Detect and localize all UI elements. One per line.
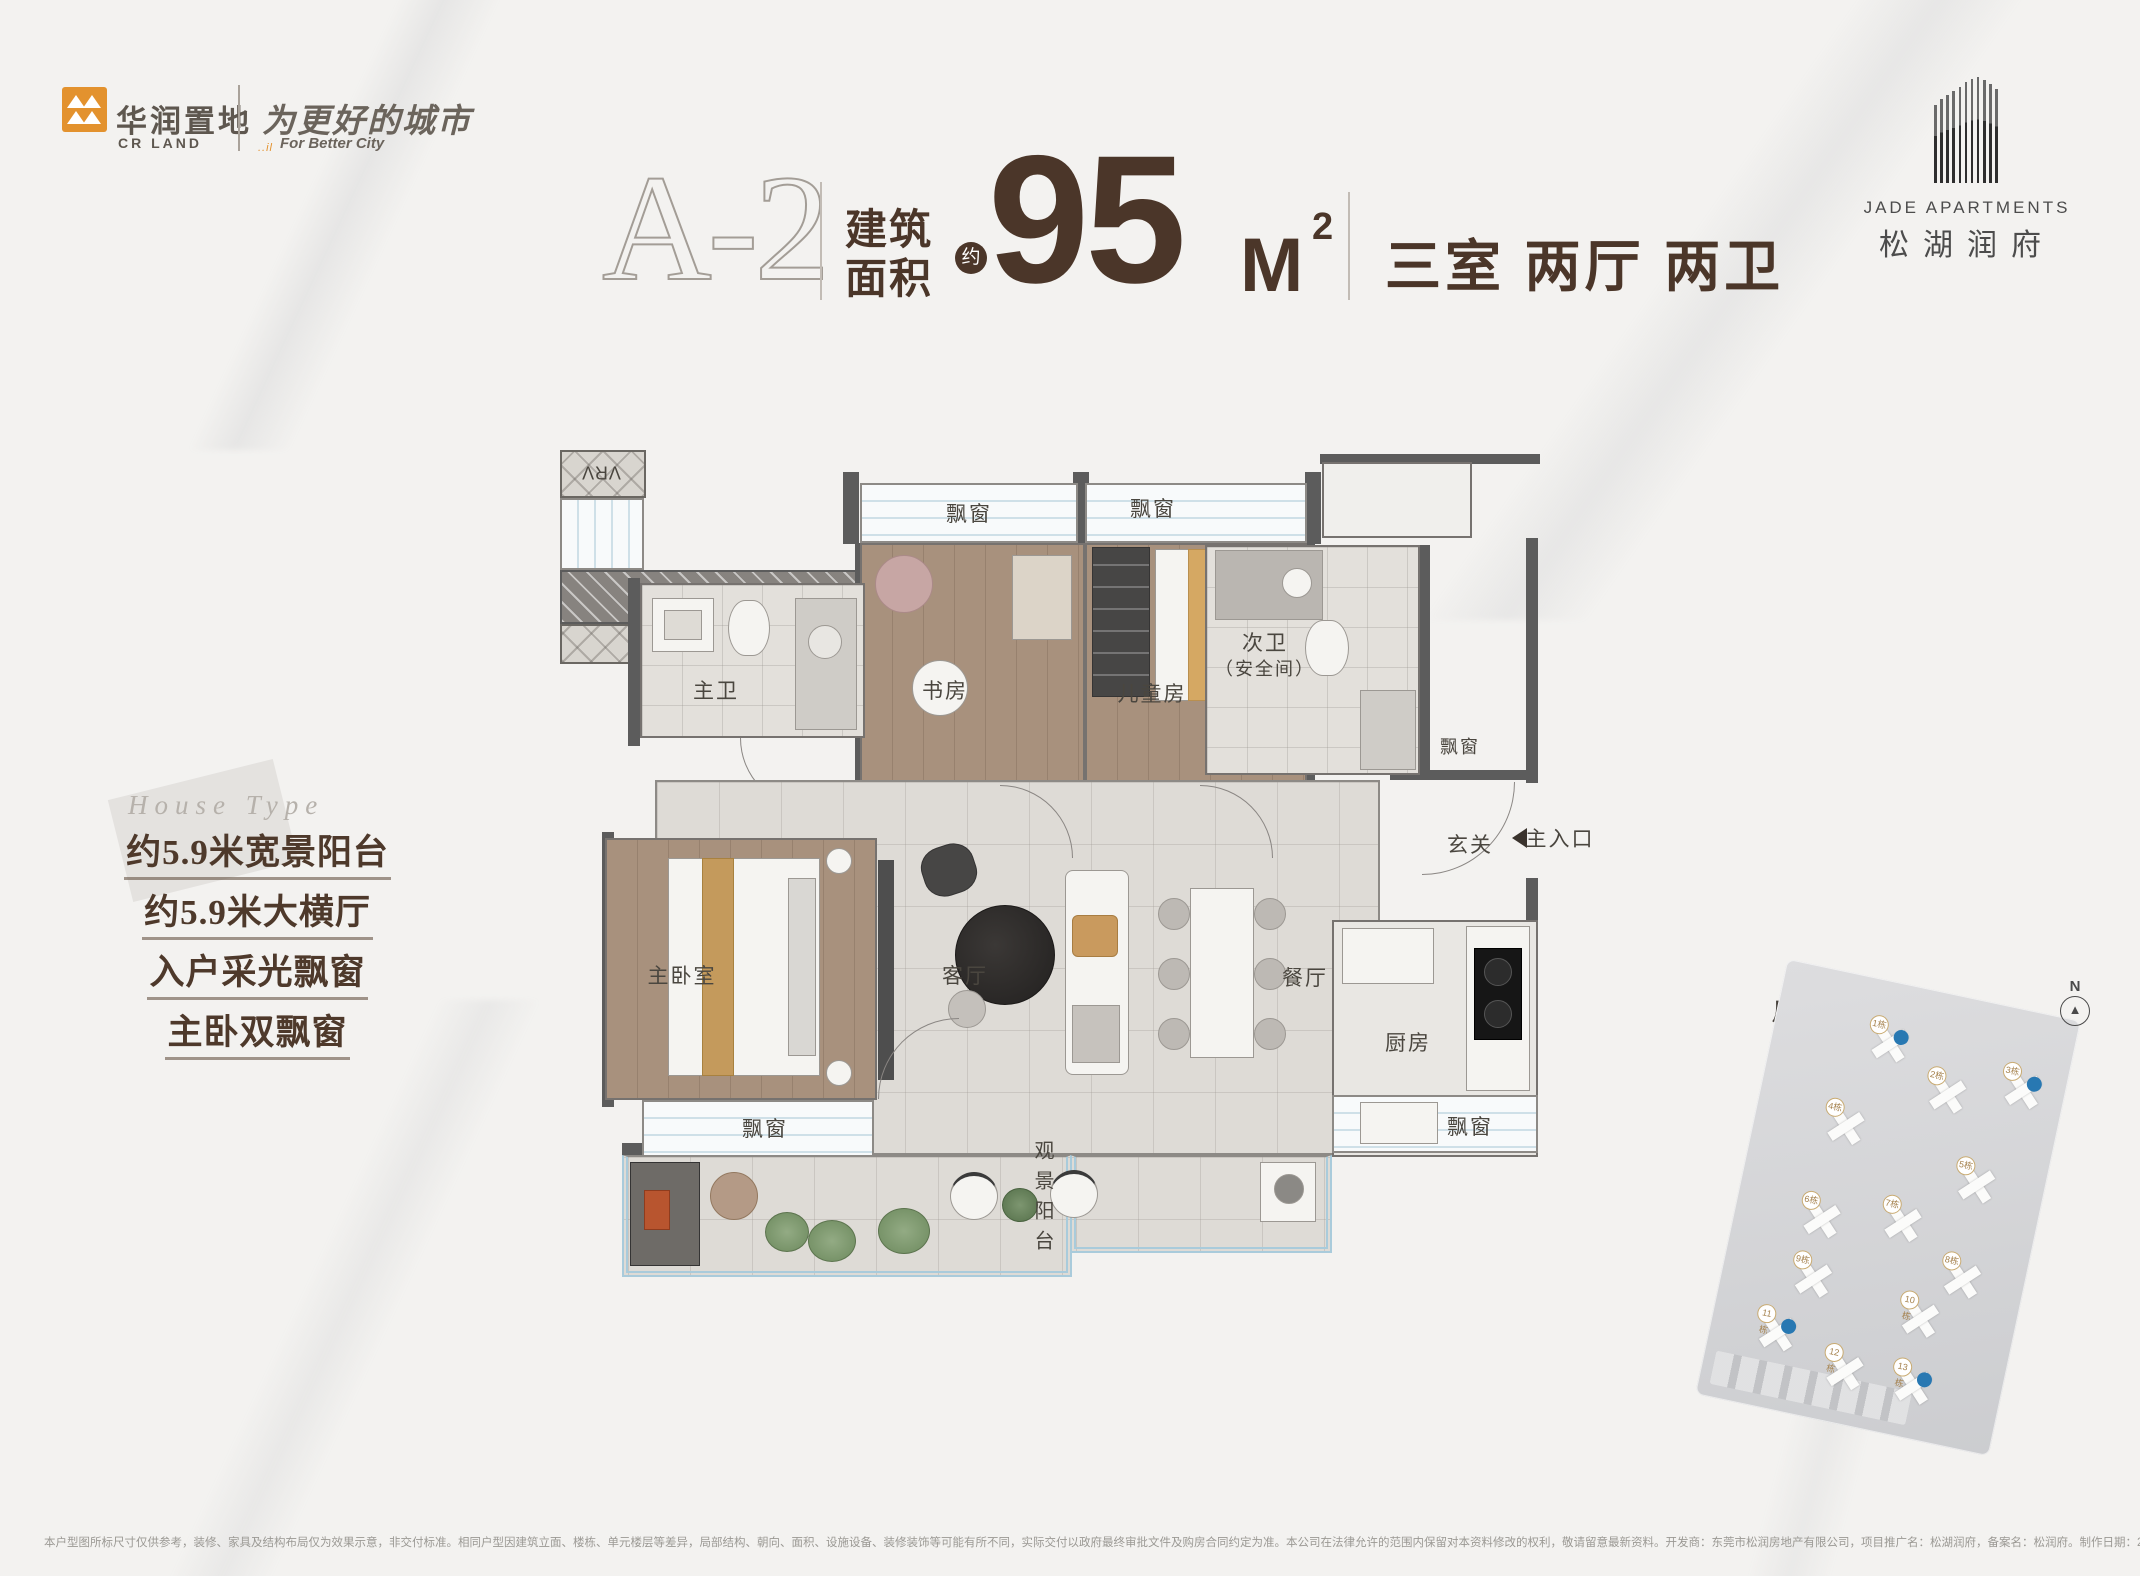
balcony-box: [644, 1190, 670, 1230]
area-unit-sup: 2: [1312, 206, 1333, 249]
project-name-en: JADE APARTMENTS: [1852, 198, 2082, 218]
study-rug: [875, 555, 933, 613]
bay-window-label: 飘窗: [742, 1113, 788, 1143]
selling-point-2: 约5.9米大横厅: [85, 884, 430, 935]
main-entrance-label: 主入口: [1526, 823, 1595, 853]
wall: [628, 578, 640, 746]
nightstand: [826, 848, 852, 874]
project-name-cn: 松湖润府: [1852, 220, 2082, 264]
balcony-label: 观景阳台: [1028, 1140, 1057, 1260]
shower-head: [808, 625, 842, 659]
plant: [765, 1212, 809, 1252]
selling-point-2-text: 约5.9米大横厅: [142, 893, 373, 940]
bay-window-label: 飘窗: [1130, 493, 1176, 523]
second-bath-shower: [1360, 690, 1416, 770]
room-master-bath-label: 主卫: [693, 675, 739, 705]
site-map: 1栋2栋3栋4栋5栋6栋7栋8栋9栋10栋11栋12栋13栋: [1695, 959, 2081, 1457]
unit-layout-text: 三室 两厅 两卫: [1385, 222, 1784, 303]
vrv-platform: [1322, 462, 1472, 538]
dining-chair: [1158, 898, 1190, 930]
room-living-label: 客厅: [942, 960, 988, 990]
balcony-table: [710, 1172, 758, 1220]
balcony-chair: [1050, 1170, 1098, 1218]
master-bath-sink: [664, 610, 702, 640]
kids-wardrobe: [1092, 547, 1150, 697]
north-compass: N ▲: [2058, 978, 2092, 1026]
dining-chair: [1158, 958, 1190, 990]
header-divider: [238, 85, 240, 151]
bay-window-kids: [1085, 483, 1307, 543]
burner: [1484, 1000, 1512, 1028]
sofa-cushion: [1072, 1005, 1120, 1063]
wall: [843, 472, 859, 544]
tv-wall: [878, 860, 894, 1080]
room-entry-label: 玄关: [1447, 829, 1493, 859]
selling-point-1-text: 约5.9米宽景阳台: [124, 833, 391, 880]
unit-type-label: A-2: [602, 152, 826, 304]
slogan-accent-icon: ..il: [258, 142, 273, 154]
plant: [878, 1208, 930, 1254]
area-unit: M: [1240, 222, 1303, 309]
bay-window-label: 飘窗: [946, 498, 992, 528]
master-bath-toilet: [728, 600, 770, 656]
north-arrow-icon: ▲: [2060, 996, 2090, 1026]
room-kitchen-label: 厨房: [1385, 1027, 1431, 1057]
title-divider: [820, 182, 822, 300]
master-bath-shower: [795, 598, 857, 730]
washer-door: [1274, 1174, 1304, 1204]
balcony-chair: [950, 1172, 998, 1220]
burner: [1484, 958, 1512, 986]
room-second-bath-label2: （安全间）: [1215, 655, 1315, 681]
room-second-bath-label: 次卫: [1242, 627, 1288, 657]
poster-canvas: 华润置地 CR LAND 为更好的城市 ..il For Better City…: [0, 0, 2140, 1576]
floor-plan: 飘窗 飘窗 VRV 书房 儿童房 次卫 （安全间） 飘窗: [560, 450, 1575, 1310]
selling-point-3-text: 入户采光飘窗: [147, 953, 367, 1000]
second-bath-sink: [1282, 568, 1312, 598]
area-value: 95: [988, 128, 1182, 310]
selling-point-4-text: 主卧双飘窗: [165, 1013, 349, 1060]
site-map-buildings: 1栋2栋3栋4栋5栋6栋7栋8栋9栋10栋11栋12栋13栋: [1695, 959, 2081, 1457]
vrv-unit: VRV: [560, 450, 646, 498]
room-master-bedroom-label: 主卧室: [648, 960, 717, 990]
wall: [1526, 538, 1538, 783]
selling-point-3: 入户采光飘窗: [85, 944, 430, 995]
bay-window-right: [560, 498, 644, 570]
wall: [1305, 472, 1321, 544]
room-dining-label: 餐厅: [1282, 962, 1328, 992]
north-label: N: [2058, 978, 2092, 995]
selling-point-4: 主卧双飘窗: [85, 1004, 430, 1055]
dining-chair: [1254, 1018, 1286, 1050]
room-study-label: 书房: [922, 675, 968, 705]
master-bed-pillows: [788, 878, 816, 1056]
jade-building-logo-icon: [1934, 77, 1998, 183]
brand-name-en: CR LAND: [118, 135, 202, 151]
room-kids-label: 儿童房: [1118, 678, 1187, 708]
study-shelf: [1012, 555, 1072, 640]
bay-window-label: 飘窗: [1440, 733, 1480, 759]
vrv-label: VRV: [581, 462, 621, 483]
dining-table: [1190, 888, 1254, 1058]
brand-slogan-en: For Better City: [280, 135, 384, 152]
kitchen-sink: [1360, 1102, 1438, 1144]
area-prefix-line2: 面积: [845, 255, 933, 302]
dining-chair: [1158, 1018, 1190, 1050]
area-prefix-line1: 建筑: [845, 206, 933, 253]
bay-window-label: 飘窗: [1447, 1111, 1493, 1141]
title-divider: [1348, 192, 1350, 300]
selling-point-1: 约5.9米宽景阳台: [85, 824, 430, 875]
area-prefix: 建筑 面积: [845, 205, 933, 303]
house-type-script: House Type: [128, 790, 324, 821]
plant: [808, 1220, 856, 1262]
wood-stool: [1072, 915, 1118, 957]
dining-chair: [1254, 898, 1286, 930]
approx-badge: 约: [955, 242, 987, 274]
nightstand: [826, 1060, 852, 1086]
crland-logo-icon: [62, 87, 107, 132]
disclaimer-text: 本户型图所标尺寸仅供参考，装修、家具及结构布局仅为效果示意，非交付标准。相同户型…: [44, 1534, 2114, 1550]
kitchen-island: [1342, 928, 1434, 984]
